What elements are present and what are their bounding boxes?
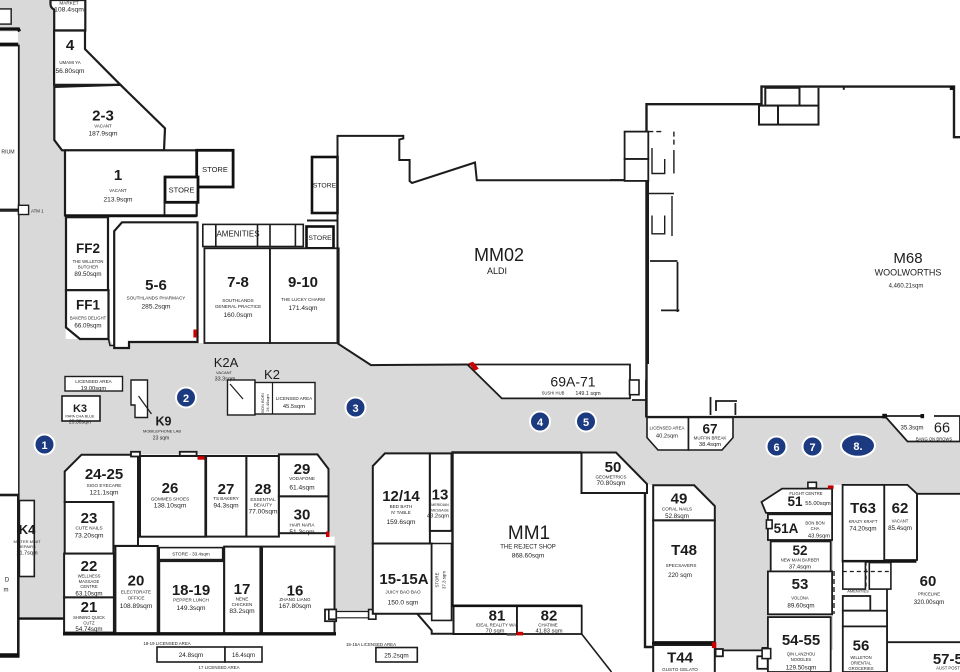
svg-text:TS BAKERY: TS BAKERY <box>213 496 239 501</box>
svg-text:38.4sqm: 38.4sqm <box>699 442 721 448</box>
svg-text:ZHANG LIANG: ZHANG LIANG <box>279 597 311 602</box>
svg-text:6: 6 <box>773 442 779 454</box>
svg-text:MARKET: MARKET <box>59 1 78 6</box>
svg-text:WOOLWORTHS: WOOLWORTHS <box>875 268 942 278</box>
svg-text:VACANT: VACANT <box>109 188 127 193</box>
svg-text:ALDI: ALDI <box>487 266 507 276</box>
svg-text:24-25: 24-25 <box>85 466 123 483</box>
svg-text:187.9sqm: 187.9sqm <box>89 131 118 138</box>
svg-text:1: 1 <box>41 440 47 452</box>
svg-text:K2: K2 <box>264 367 280 382</box>
svg-text:MM1: MM1 <box>508 523 550 544</box>
svg-text:ORIENTAL: ORIENTAL <box>851 661 872 666</box>
svg-text:167.80sqm: 167.80sqm <box>279 603 312 610</box>
svg-text:GOMMES SHOES: GOMMES SHOES <box>151 497 189 502</box>
svg-text:FF2: FF2 <box>76 241 100 256</box>
svg-text:WELLNESS: WELLNESS <box>78 574 101 579</box>
svg-text:AUST POST: AUST POST <box>936 666 960 671</box>
svg-text:40.2sqm: 40.2sqm <box>656 434 678 440</box>
svg-text:89.50sqm: 89.50sqm <box>74 271 101 278</box>
svg-text:RIUM: RIUM <box>1 150 14 156</box>
svg-text:85.4sqm: 85.4sqm <box>888 525 912 532</box>
svg-text:138.10sqm: 138.10sqm <box>154 503 187 510</box>
svg-text:SOUTHLANDS: SOUTHLANDS <box>222 298 253 303</box>
svg-text:SUSHI HUB: SUSHI HUB <box>542 391 565 396</box>
svg-text:220 sqm: 220 sqm <box>668 572 692 579</box>
svg-text:K4: K4 <box>19 522 36 537</box>
svg-text:26: 26 <box>162 480 179 497</box>
svg-text:13: 13 <box>432 487 449 504</box>
svg-text:BED BATH: BED BATH <box>390 504 413 509</box>
svg-text:MESSAGE: MESSAGE <box>431 509 449 513</box>
svg-text:7: 7 <box>809 442 815 454</box>
svg-text:KRAZY KRAFT: KRAZY KRAFT <box>849 519 878 524</box>
svg-text:MOBILEPHONE LAB: MOBILEPHONE LAB <box>143 429 181 434</box>
svg-text:15-15A LICENSED AREA: 15-15A LICENSED AREA <box>346 642 396 647</box>
svg-text:52.8sqm: 52.8sqm <box>665 513 689 520</box>
svg-text:54.74sqm: 54.74sqm <box>75 626 102 633</box>
svg-text:160.0sqm: 160.0sqm <box>224 312 253 319</box>
svg-text:CUTZ: CUTZ <box>83 620 95 625</box>
svg-text:69A-71: 69A-71 <box>550 374 595 390</box>
svg-text:K2A: K2A <box>214 355 239 370</box>
svg-text:24.40sqm: 24.40sqm <box>265 394 270 412</box>
svg-text:22: 22 <box>81 558 98 575</box>
svg-text:4: 4 <box>537 417 544 429</box>
svg-text:LICENSED AREA: LICENSED AREA <box>650 426 685 431</box>
svg-text:HAIR NARA: HAIR NARA <box>289 523 315 528</box>
svg-text:PAPA CHA BLUE: PAPA CHA BLUE <box>65 415 95 419</box>
svg-text:70 sqm: 70 sqm <box>485 629 504 635</box>
svg-text:52: 52 <box>792 543 807 558</box>
svg-text:T44: T44 <box>667 650 694 667</box>
svg-text:LICENSED AREA: LICENSED AREA <box>276 396 313 401</box>
svg-text:VACANT: VACANT <box>94 124 112 129</box>
svg-text:74.20sqm: 74.20sqm <box>849 526 876 533</box>
svg-text:GENERAL PRACTICE: GENERAL PRACTICE <box>215 304 261 309</box>
svg-text:AMENITIES: AMENITIES <box>216 230 259 239</box>
svg-text:56: 56 <box>853 638 870 655</box>
svg-text:THE WILLETON: THE WILLETON <box>73 259 104 264</box>
svg-text:73.20sqm: 73.20sqm <box>75 533 104 540</box>
svg-text:94.3sqm: 94.3sqm <box>213 503 239 510</box>
svg-text:UMAMI YA: UMAMI YA <box>59 60 80 65</box>
svg-text:FF1: FF1 <box>76 298 100 313</box>
svg-text:1: 1 <box>114 167 122 184</box>
svg-text:CHA: CHA <box>811 526 820 531</box>
svg-text:51.3sqm: 51.3sqm <box>289 529 315 536</box>
svg-text:SPECSAVERS: SPECSAVERS <box>666 563 697 568</box>
svg-text:4: 4 <box>66 37 75 54</box>
svg-text:49: 49 <box>671 491 688 508</box>
svg-text:121.1sqm: 121.1sqm <box>90 490 119 497</box>
svg-text:STORE: STORE <box>308 235 332 242</box>
svg-text:T63: T63 <box>850 500 876 517</box>
svg-text:7-8: 7-8 <box>227 274 249 291</box>
svg-text:150.0 sqm: 150.0 sqm <box>388 600 419 607</box>
svg-text:159.6sqm: 159.6sqm <box>387 519 416 526</box>
svg-text:PRICELINE: PRICELINE <box>918 592 940 597</box>
svg-text:GUSTO GELATO: GUSTO GELATO <box>662 667 698 672</box>
svg-text:25.30sqm: 25.30sqm <box>69 420 91 426</box>
svg-text:56.80sqm: 56.80sqm <box>56 68 85 75</box>
svg-text:ESSENTIAL: ESSENTIAL <box>250 497 276 502</box>
svg-text:CENTRE: CENTRE <box>80 584 97 589</box>
svg-text:THE REJECT SHOP: THE REJECT SHOP <box>500 545 556 551</box>
svg-text:N' TABLE: N' TABLE <box>391 510 411 515</box>
svg-text:149.1 sqm: 149.1 sqm <box>575 391 601 397</box>
svg-text:BANG ON BROWS: BANG ON BROWS <box>916 437 953 442</box>
svg-text:STORE: STORE <box>435 572 440 587</box>
svg-text:T48: T48 <box>671 542 697 559</box>
svg-text:108.89sqm: 108.89sqm <box>120 603 153 610</box>
svg-text:QIN LANZHOU: QIN LANZHOU <box>787 652 816 657</box>
svg-text:20: 20 <box>128 573 145 590</box>
svg-text:37.4sqm: 37.4sqm <box>789 565 811 571</box>
svg-text:45.5sqm: 45.5sqm <box>283 404 305 410</box>
svg-text:LICENSED AREA: LICENSED AREA <box>75 379 112 384</box>
svg-text:43.9sqm: 43.9sqm <box>808 534 830 540</box>
svg-text:STORE: STORE <box>169 186 195 195</box>
svg-text:AMENITIES: AMENITIES <box>847 589 869 594</box>
svg-text:CUTE NAILS: CUTE NAILS <box>75 526 102 531</box>
svg-text:23: 23 <box>81 510 98 527</box>
svg-text:51A: 51A <box>774 521 799 536</box>
svg-text:60: 60 <box>920 573 937 590</box>
svg-text:23 sqm: 23 sqm <box>153 436 169 442</box>
svg-text:SOUTHLANDS PHARMACY: SOUTHLANDS PHARMACY <box>127 296 186 301</box>
svg-text:61.4sqm: 61.4sqm <box>289 485 315 492</box>
svg-text:62: 62 <box>892 500 909 517</box>
svg-text:66: 66 <box>934 421 950 437</box>
svg-text:5: 5 <box>583 417 589 429</box>
svg-text:m: m <box>4 588 9 594</box>
svg-text:GEOMETRICS: GEOMETRICS <box>596 475 627 480</box>
svg-text:108.4sqm: 108.4sqm <box>54 7 84 14</box>
svg-text:9-10: 9-10 <box>288 274 318 291</box>
svg-text:VACANT: VACANT <box>216 370 232 375</box>
svg-text:STORE - 33.4sqm: STORE - 33.4sqm <box>172 552 210 557</box>
svg-text:16.4sqm: 16.4sqm <box>232 653 255 659</box>
svg-text:67: 67 <box>702 422 717 437</box>
svg-text:BEAUTY: BEAUTY <box>254 503 272 508</box>
svg-text:55.00sqm: 55.00sqm <box>805 501 831 507</box>
svg-text:IDEAL REALITY WA: IDEAL REALITY WA <box>476 623 516 628</box>
svg-text:D: D <box>5 578 10 584</box>
svg-text:43.2sqm: 43.2sqm <box>427 514 449 520</box>
svg-text:BUTCHER: BUTCHER <box>78 265 98 270</box>
svg-text:MERIDIAN: MERIDIAN <box>431 503 449 507</box>
svg-text:285.2sqm: 285.2sqm <box>142 304 171 311</box>
svg-text:NENE: NENE <box>236 597 249 602</box>
svg-text:MM02: MM02 <box>474 245 524 265</box>
svg-text:66.09sqm: 66.09sqm <box>74 323 101 330</box>
svg-text:35.3sqm: 35.3sqm <box>900 426 923 432</box>
svg-text:NOODLES: NOODLES <box>791 657 812 662</box>
svg-text:70.80sqm: 70.80sqm <box>597 480 626 487</box>
svg-text:OFFICE: OFFICE <box>128 595 145 600</box>
svg-text:24.8sqm: 24.8sqm <box>179 652 204 659</box>
svg-text:M68: M68 <box>893 250 922 267</box>
svg-text:28: 28 <box>255 481 272 498</box>
svg-text:STORE: STORE <box>202 165 228 174</box>
svg-text:ATM 1: ATM 1 <box>31 209 44 214</box>
svg-text:149.3sqm: 149.3sqm <box>177 605 206 612</box>
svg-text:17: 17 <box>234 581 251 598</box>
svg-text:K9: K9 <box>156 415 172 429</box>
svg-text:37.3 sqm: 37.3 sqm <box>442 571 447 589</box>
svg-text:15-15A: 15-15A <box>379 571 428 588</box>
svg-text:51: 51 <box>787 494 803 509</box>
svg-text:BON BON: BON BON <box>805 521 824 526</box>
svg-text:SIGO EYECARE: SIGO EYECARE <box>87 483 122 488</box>
svg-text:54-55: 54-55 <box>782 632 820 649</box>
svg-text:4,460.21sqm: 4,460.21sqm <box>889 284 924 290</box>
svg-text:STORE: STORE <box>313 183 337 190</box>
svg-text:THE LUCKY CHARM: THE LUCKY CHARM <box>281 297 325 302</box>
svg-text:77.00sqm: 77.00sqm <box>249 509 278 516</box>
svg-text:REPAIRS: REPAIRS <box>18 544 36 549</box>
svg-text:VOLONA: VOLONA <box>791 596 809 601</box>
svg-text:CORAL NAILS: CORAL NAILS <box>662 507 692 512</box>
svg-text:2-3: 2-3 <box>92 108 114 125</box>
svg-text:ELECTORATE: ELECTORATE <box>121 590 151 595</box>
svg-text:JUICY BAO BAO: JUICY BAO BAO <box>385 590 421 595</box>
svg-text:30: 30 <box>294 507 311 524</box>
svg-text:129.50sqm: 129.50sqm <box>786 665 817 672</box>
svg-text:CHICKEN: CHICKEN <box>232 602 253 607</box>
svg-text:K3: K3 <box>73 403 87 415</box>
svg-text:PEPPER LUNCH: PEPPER LUNCH <box>173 598 209 603</box>
svg-text:18-19 LICENSED AREA: 18-19 LICENSED AREA <box>143 641 190 646</box>
svg-text:171.4sqm: 171.4sqm <box>289 305 318 312</box>
svg-text:868.60sqm: 868.60sqm <box>512 553 545 560</box>
svg-text:SHINING QUICK: SHINING QUICK <box>73 615 105 620</box>
svg-text:5-6: 5-6 <box>145 277 167 294</box>
svg-text:MUFFIN BREAK: MUFFIN BREAK <box>694 436 727 441</box>
svg-text:25.2sqm: 25.2sqm <box>384 653 409 660</box>
svg-text:FLIGHT CENTRE: FLIGHT CENTRE <box>789 491 822 496</box>
svg-text:12/14: 12/14 <box>382 488 420 505</box>
svg-text:41.83 sqm: 41.83 sqm <box>535 629 562 635</box>
svg-text:213.9sqm: 213.9sqm <box>104 197 133 204</box>
svg-text:CHATIME: CHATIME <box>538 623 558 628</box>
svg-text:NEW MAN BARBER: NEW MAN BARBER <box>781 558 820 563</box>
svg-text:GROCERIES: GROCERIES <box>848 666 873 671</box>
svg-text:50: 50 <box>605 459 622 476</box>
svg-text:83.2sqm: 83.2sqm <box>229 608 255 615</box>
svg-text:2: 2 <box>183 393 189 405</box>
svg-text:53: 53 <box>792 576 809 593</box>
svg-text:320.00sqm: 320.00sqm <box>914 599 945 606</box>
svg-text:BAKERS DELIGHT: BAKERS DELIGHT <box>70 316 107 321</box>
svg-text:17 LICENSED AREA: 17 LICENSED AREA <box>199 665 240 670</box>
svg-text:VACANT: VACANT <box>892 519 909 524</box>
svg-text:21: 21 <box>81 599 98 616</box>
svg-text:19.00sqm: 19.00sqm <box>81 386 107 392</box>
svg-text:3: 3 <box>352 403 358 415</box>
svg-text:WILLETON: WILLETON <box>850 655 871 660</box>
svg-text:33.3sqm: 33.3sqm <box>215 377 236 383</box>
svg-text:21.7sqm: 21.7sqm <box>16 551 38 557</box>
svg-text:8.: 8. <box>853 441 862 453</box>
svg-text:18-19: 18-19 <box>172 582 210 599</box>
svg-text:VODAFONE: VODAFONE <box>289 476 315 481</box>
svg-text:89.60sqm: 89.60sqm <box>787 603 814 610</box>
